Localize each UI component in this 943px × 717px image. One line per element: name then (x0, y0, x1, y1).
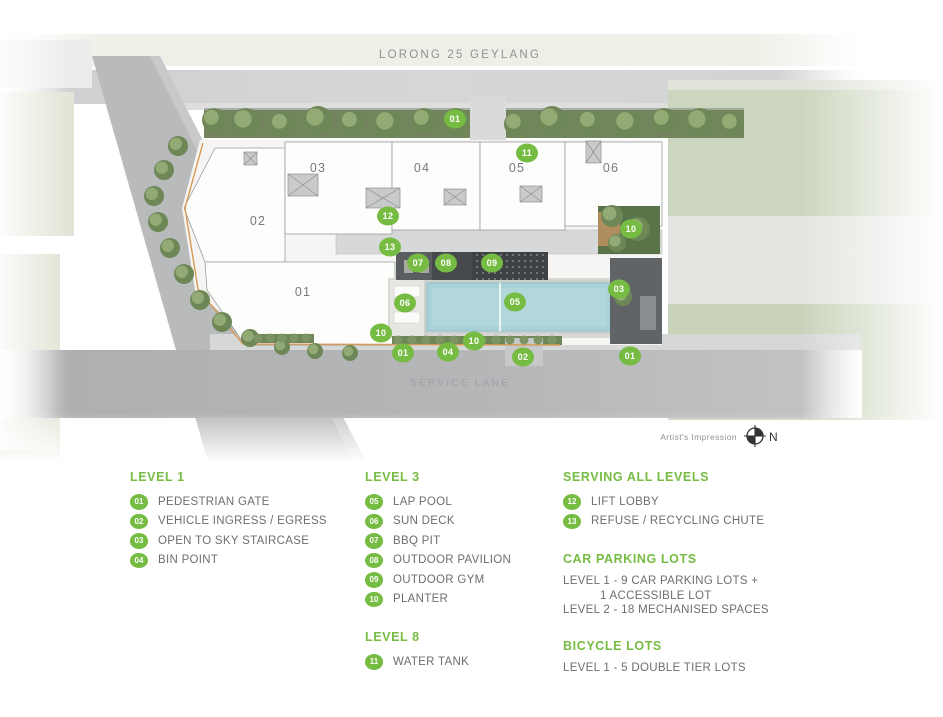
legend-item-badge: 10 (365, 592, 383, 608)
fade-bottom (0, 412, 943, 462)
legend-item-label: BIN POINT (158, 554, 218, 566)
plan-marker-10: 10 (463, 332, 485, 351)
legend-column-2: LEVEL 305LAP POOL06SUN DECK07BBQ PIT08OU… (365, 470, 511, 672)
legend-section: LEVEL 101PEDESTRIAN GATE02VEHICLE INGRES… (130, 470, 327, 570)
legend-item: 06SUN DECK (365, 512, 511, 532)
legend-section: CAR PARKING LOTSLEVEL 1 - 9 CAR PARKING … (563, 552, 769, 618)
legend-column-1: LEVEL 101PEDESTRIAN GATE02VEHICLE INGRES… (130, 470, 327, 570)
legend-item-label: VEHICLE INGRESS / EGRESS (158, 515, 327, 527)
legend-column-3: SERVING ALL LEVELS12LIFT LOBBY13REFUSE /… (563, 470, 769, 675)
plan-marker-07: 07 (407, 254, 429, 273)
legend-text-line: LEVEL 2 - 18 MECHANISED SPACES (563, 603, 769, 618)
site-plan-page: LORONG 25 GEYLANG SERVICE LANE 010203040… (0, 0, 943, 717)
legend-section-title: LEVEL 1 (130, 470, 327, 484)
site-plan-illustration: LORONG 25 GEYLANG SERVICE LANE 010203040… (0, 0, 943, 462)
legend-item: 05LAP POOL (365, 492, 511, 512)
legend-item-label: SUN DECK (393, 515, 455, 527)
legend-item-badge: 05 (365, 494, 383, 510)
svg-text:09: 09 (487, 258, 498, 268)
legend-item: 01PEDESTRIAN GATE (130, 492, 327, 512)
legend-section-title: LEVEL 3 (365, 470, 511, 484)
plan-marker-06: 06 (394, 294, 416, 313)
svg-text:08: 08 (441, 258, 452, 268)
legend-item: 13REFUSE / RECYCLING CHUTE (563, 512, 769, 532)
legend-item-label: PEDESTRIAN GATE (158, 496, 270, 508)
legend-section-title: LEVEL 8 (365, 630, 511, 644)
legend-item-label: WATER TANK (393, 656, 469, 668)
plan-marker-01: 01 (392, 344, 414, 363)
svg-text:04: 04 (443, 347, 454, 357)
svg-text:01: 01 (625, 351, 636, 361)
svg-text:10: 10 (376, 328, 387, 338)
block-label-01: 01 (295, 285, 311, 299)
north-label: N (769, 430, 778, 444)
legend: LEVEL 101PEDESTRIAN GATE02VEHICLE INGRES… (0, 470, 943, 710)
block-04 (392, 142, 480, 230)
legend-item-badge: 03 (130, 533, 148, 549)
legend-item-badge: 04 (130, 553, 148, 569)
legend-item-label: OUTDOOR PAVILION (393, 554, 511, 566)
site-plan-svg: LORONG 25 GEYLANG SERVICE LANE 010203040… (0, 0, 943, 462)
legend-item-badge: 09 (365, 572, 383, 588)
legend-section-title: SERVING ALL LEVELS (563, 470, 769, 484)
legend-item-label: LAP POOL (393, 496, 452, 508)
svg-text:01: 01 (398, 348, 409, 358)
legend-item-label: LIFT LOBBY (591, 496, 659, 508)
legend-item-badge: 08 (365, 553, 383, 569)
legend-section-title: BICYCLE LOTS (563, 639, 769, 653)
plan-marker-10: 10 (370, 324, 392, 343)
svg-text:10: 10 (626, 224, 637, 234)
svg-text:02: 02 (518, 352, 529, 362)
legend-item-label: OPEN TO SKY STAIRCASE (158, 535, 309, 547)
fade-left (0, 30, 70, 450)
svg-text:12: 12 (383, 211, 394, 221)
legend-item-badge: 06 (365, 514, 383, 530)
legend-item-badge: 02 (130, 514, 148, 530)
block-label-05: 05 (509, 161, 525, 175)
plan-marker-05: 05 (504, 293, 526, 312)
legend-item-badge: 01 (130, 494, 148, 510)
plan-marker-08: 08 (435, 254, 457, 273)
legend-item-badge: 07 (365, 533, 383, 549)
svg-text:01: 01 (450, 114, 461, 124)
plan-marker-11: 11 (516, 144, 538, 163)
legend-item: 07BBQ PIT (365, 531, 511, 551)
svg-text:10: 10 (469, 336, 480, 346)
block-label-02: 02 (250, 214, 266, 228)
svg-text:06: 06 (400, 298, 411, 308)
legend-item-label: OUTDOOR GYM (393, 574, 484, 586)
legend-item: 10PLANTER (365, 590, 511, 610)
svg-text:11: 11 (522, 148, 532, 158)
plan-marker-13: 13 (379, 238, 401, 257)
legend-item: 04BIN POINT (130, 551, 327, 571)
legend-section: LEVEL 305LAP POOL06SUN DECK07BBQ PIT08OU… (365, 470, 511, 609)
legend-item: 09OUTDOOR GYM (365, 570, 511, 590)
block-label-06: 06 (603, 161, 619, 175)
legend-item-label: PLANTER (393, 593, 448, 605)
svg-text:03: 03 (614, 284, 625, 294)
block-label-04: 04 (414, 161, 430, 175)
plan-marker-01: 01 (619, 347, 641, 366)
legend-section-title: CAR PARKING LOTS (563, 552, 769, 566)
legend-item: 02VEHICLE INGRESS / EGRESS (130, 512, 327, 532)
legend-text-line: LEVEL 1 - 5 DOUBLE TIER LOTS (563, 661, 769, 676)
bottom-road (0, 334, 862, 418)
legend-item: 03OPEN TO SKY STAIRCASE (130, 531, 327, 551)
svg-text:05: 05 (510, 297, 521, 307)
fade-right (800, 30, 943, 440)
plan-marker-10: 10 (620, 220, 642, 239)
plan-marker-02: 02 (512, 348, 534, 367)
plan-marker-09: 09 (481, 254, 503, 273)
legend-section: SERVING ALL LEVELS12LIFT LOBBY13REFUSE /… (563, 470, 769, 531)
top-road-label: LORONG 25 GEYLANG (379, 49, 541, 61)
plan-marker-12: 12 (377, 207, 399, 226)
plan-marker-01: 01 (444, 110, 466, 129)
svg-text:13: 13 (385, 242, 396, 252)
bottom-road-label: SERVICE LANE (410, 377, 510, 389)
gate-path (470, 96, 506, 140)
legend-text-line: 1 ACCESSIBLE LOT (563, 589, 769, 604)
legend-section: BICYCLE LOTSLEVEL 1 - 5 DOUBLE TIER LOTS (563, 639, 769, 676)
artists-impression-label: Artist's Impression (660, 432, 737, 442)
legend-item-badge: 11 (365, 654, 383, 670)
plan-marker-03: 03 (608, 280, 630, 299)
plan-marker-04: 04 (437, 343, 459, 362)
legend-item: 11WATER TANK (365, 652, 511, 672)
legend-item-label: REFUSE / RECYCLING CHUTE (591, 515, 764, 527)
legend-item-label: BBQ PIT (393, 535, 440, 547)
legend-item: 08OUTDOOR PAVILION (365, 551, 511, 571)
legend-item-badge: 13 (563, 514, 581, 530)
block-label-03: 03 (310, 161, 326, 175)
legend-text-line: LEVEL 1 - 9 CAR PARKING LOTS + (563, 574, 769, 589)
svg-text:07: 07 (413, 258, 424, 268)
legend-item-badge: 12 (563, 494, 581, 510)
legend-item: 12LIFT LOBBY (563, 492, 769, 512)
legend-section: LEVEL 811WATER TANK (365, 630, 511, 672)
